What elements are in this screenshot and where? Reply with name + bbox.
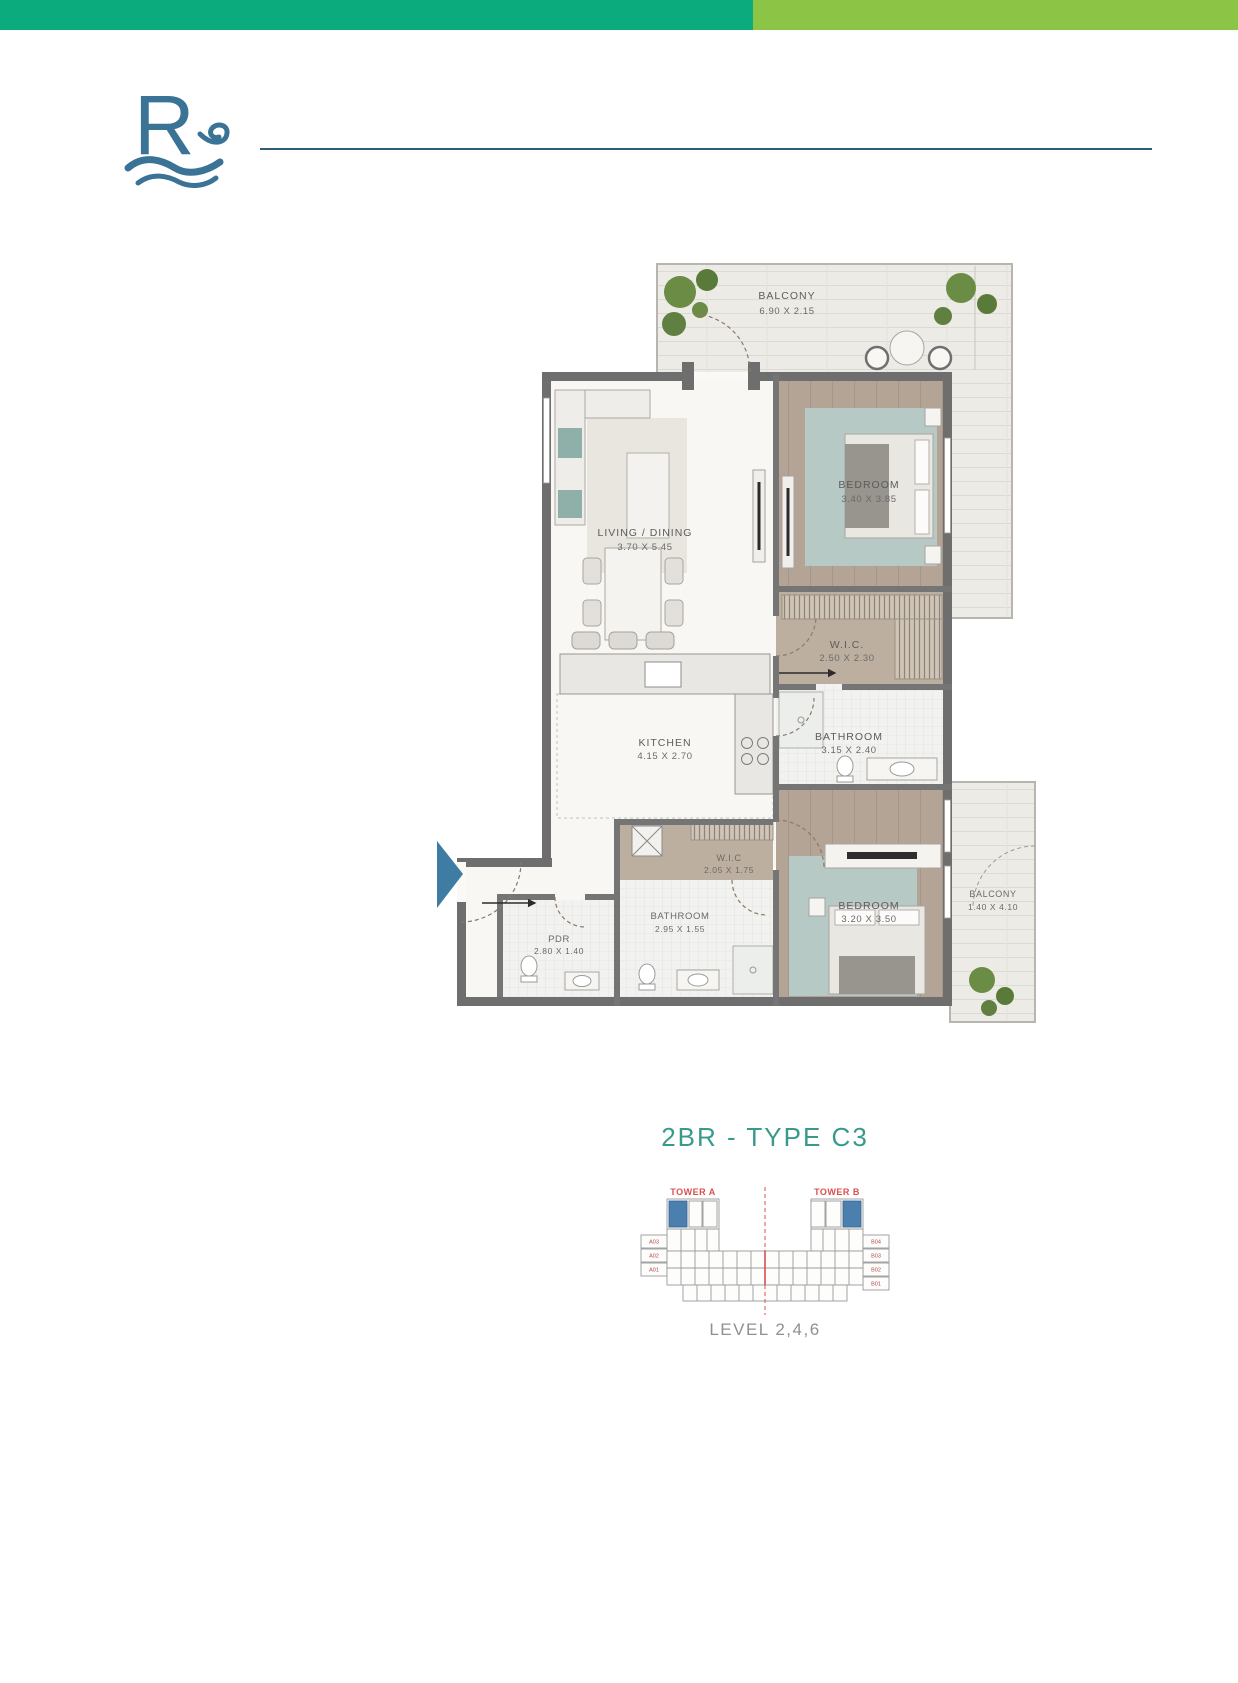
shower-2 <box>733 946 773 994</box>
pdr-sink <box>573 976 591 987</box>
top-bar-teal-segment <box>0 0 753 30</box>
sink-2 <box>688 974 708 986</box>
kitchen-counter <box>735 694 773 794</box>
keyplan-unit-label: B02 <box>871 1268 881 1274</box>
wic-2-dims: 2.05 X 1.75 <box>704 865 754 875</box>
kitchen-sink <box>645 662 681 687</box>
bathroom-1-label: BATHROOM <box>815 731 883 743</box>
pdr-toilet <box>521 956 537 976</box>
balcony-top-label: BALCONY <box>758 290 815 302</box>
living-dining-label: LIVING / DINING <box>598 527 693 539</box>
top-bar-green-segment <box>753 0 1238 30</box>
nightstand <box>925 546 941 564</box>
keyplan-unit-label: B04 <box>871 1240 881 1246</box>
balcony-door-opening <box>694 372 748 381</box>
pillow <box>915 490 929 534</box>
bedroom-1-label: BEDROOM <box>838 479 899 491</box>
pdr-dims: 2.80 X 1.40 <box>534 946 584 956</box>
bathroom-1-dims: 3.15 X 2.40 <box>821 745 876 756</box>
level-label: LEVEL 2,4,6 <box>460 1320 1070 1340</box>
keyplan-unit-label: B01 <box>871 1282 881 1288</box>
wic-1-dims: 2.50 X 2.30 <box>819 653 874 664</box>
bathroom-2-label: BATHROOM <box>651 911 710 922</box>
kitchen-dims: 4.15 X 2.70 <box>637 751 692 762</box>
nightstand <box>925 408 941 426</box>
sink-1 <box>890 762 914 776</box>
key-plan: A03 A02 A01 B04 B03 B02 B01 TOWER A TOWE… <box>615 1183 915 1333</box>
unit-type-title: 2BR - TYPE C3 <box>460 1122 1070 1153</box>
balcony-right-area: BALCONY 1.40 X 4.10 <box>950 782 1035 1022</box>
toilet-2 <box>639 964 655 984</box>
sofa-cushion-2 <box>558 490 582 518</box>
balcony-right-label: BALCONY <box>969 889 1016 899</box>
nightstand <box>809 898 825 916</box>
pdr-label: PDR <box>548 934 570 945</box>
balcony-top-dims: 6.90 X 2.15 <box>759 306 814 317</box>
wic-1-label: W.I.C. <box>830 639 865 651</box>
keyplan-unit-label: A03 <box>649 1240 659 1246</box>
logo-swirl <box>200 125 227 142</box>
bar-stool <box>609 632 637 649</box>
keyplan-unit-label: A01 <box>649 1268 659 1274</box>
floor-plan-drawing: BALCONY 6.90 X 2.15 BALCONY 1.40 X 4.10 <box>437 258 1037 1033</box>
kitchen-label: KITCHEN <box>638 737 691 749</box>
bathroom-2-dims: 2.95 X 1.55 <box>655 924 705 934</box>
brochure-page: R <box>0 0 1238 1683</box>
tower-a-label: TOWER A <box>670 1187 716 1197</box>
pillow <box>915 440 929 484</box>
entry-opening <box>457 862 466 902</box>
keyplan-highlight-unit-right <box>843 1201 861 1227</box>
keyplan-highlight-unit-left <box>669 1201 687 1227</box>
keyplan-unit-label: B03 <box>871 1254 881 1260</box>
brand-logo: R <box>112 68 262 198</box>
bar-stool <box>646 632 674 649</box>
logo-wave-2 <box>138 176 216 185</box>
toilet-1 <box>837 756 853 776</box>
bed-2-blanket <box>839 956 915 994</box>
bedroom-1-dims: 3.40 X 3.85 <box>841 494 896 505</box>
keyplan-unit-label: A02 <box>649 1254 659 1260</box>
key-plan-drawing: A03 A02 A01 B04 B03 B02 B01 TOWER A TOWE… <box>615 1183 915 1333</box>
tower-b-label: TOWER B <box>814 1187 860 1197</box>
bar-stool <box>572 632 600 649</box>
bedroom-2-dims: 3.20 X 3.50 <box>841 914 896 925</box>
sofa-cushion-1 <box>558 428 582 458</box>
header-divider-line <box>260 148 1152 150</box>
wic-2-label: W.I.C <box>717 853 742 863</box>
balcony-right-dims: 1.40 X 4.10 <box>968 902 1018 912</box>
coffee-table <box>627 453 669 538</box>
brand-logo-graphic: R <box>112 68 262 198</box>
living-dining-dims: 3.70 X 5.45 <box>617 542 672 553</box>
floor-plan: BALCONY 6.90 X 2.15 BALCONY 1.40 X 4.10 <box>437 258 1037 1033</box>
bedroom-2-label: BEDROOM <box>838 900 899 912</box>
